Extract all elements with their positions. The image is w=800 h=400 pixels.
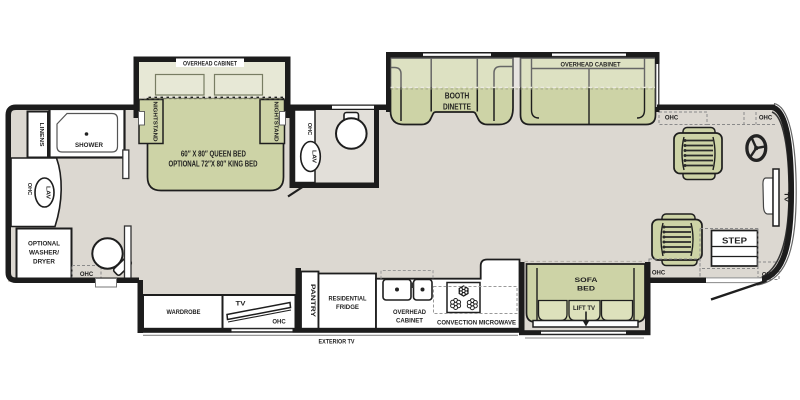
svg-text:CABINET: CABINET: [396, 317, 423, 324]
svg-text:OVERHEAD CABINET: OVERHEAD CABINET: [183, 60, 237, 67]
svg-text:LINENS: LINENS: [38, 123, 44, 147]
svg-text:OHC: OHC: [762, 273, 776, 279]
svg-text:SHOWER: SHOWER: [75, 142, 103, 149]
svg-text:TV: TV: [783, 192, 789, 202]
svg-text:LAV: LAV: [311, 150, 317, 163]
svg-text:TV: TV: [236, 301, 247, 308]
svg-text:DINETTE: DINETTE: [443, 102, 471, 112]
svg-text:LIFT TV: LIFT TV: [573, 306, 595, 312]
svg-text:NIGHTSTAND: NIGHTSTAND: [272, 102, 278, 142]
svg-text:PANTRY: PANTRY: [309, 284, 316, 318]
svg-text:WARDROBE: WARDROBE: [167, 309, 202, 316]
svg-text:RESIDENTIAL: RESIDENTIAL: [329, 296, 367, 303]
svg-text:WASHER/: WASHER/: [29, 250, 59, 257]
svg-text:CONVECTION MICROWAVE: CONVECTION MICROWAVE: [437, 319, 517, 326]
svg-text:OPTIONAL 72″X 80″ KING BED: OPTIONAL 72″X 80″ KING BED: [169, 160, 258, 169]
svg-text:BOOTH: BOOTH: [445, 91, 470, 101]
svg-text:60″ X 80″ QUEEN BED: 60″ X 80″ QUEEN BED: [181, 150, 246, 159]
svg-text:OHC: OHC: [665, 116, 679, 122]
svg-text:OHC: OHC: [272, 320, 286, 326]
svg-text:DRYER: DRYER: [33, 259, 56, 266]
svg-text:STEP: STEP: [722, 236, 747, 246]
svg-text:FRIDGE: FRIDGE: [336, 304, 360, 311]
svg-text:OPTIONAL: OPTIONAL: [28, 241, 60, 248]
svg-text:OHC: OHC: [80, 272, 94, 278]
svg-text:BED: BED: [577, 286, 595, 293]
svg-text:LAV: LAV: [45, 186, 51, 199]
svg-text:OHC: OHC: [26, 183, 32, 195]
svg-text:OHC: OHC: [759, 116, 773, 122]
svg-text:SOFA: SOFA: [575, 277, 598, 284]
svg-text:OHC: OHC: [652, 271, 666, 277]
svg-text:NIGHTSTAND: NIGHTSTAND: [152, 102, 158, 142]
svg-text:OHC: OHC: [306, 123, 312, 135]
svg-text:OVERHEAD: OVERHEAD: [393, 309, 426, 316]
svg-text:EXTERIOR TV: EXTERIOR TV: [319, 339, 356, 346]
svg-text:OVERHEAD CABINET: OVERHEAD CABINET: [561, 62, 621, 69]
